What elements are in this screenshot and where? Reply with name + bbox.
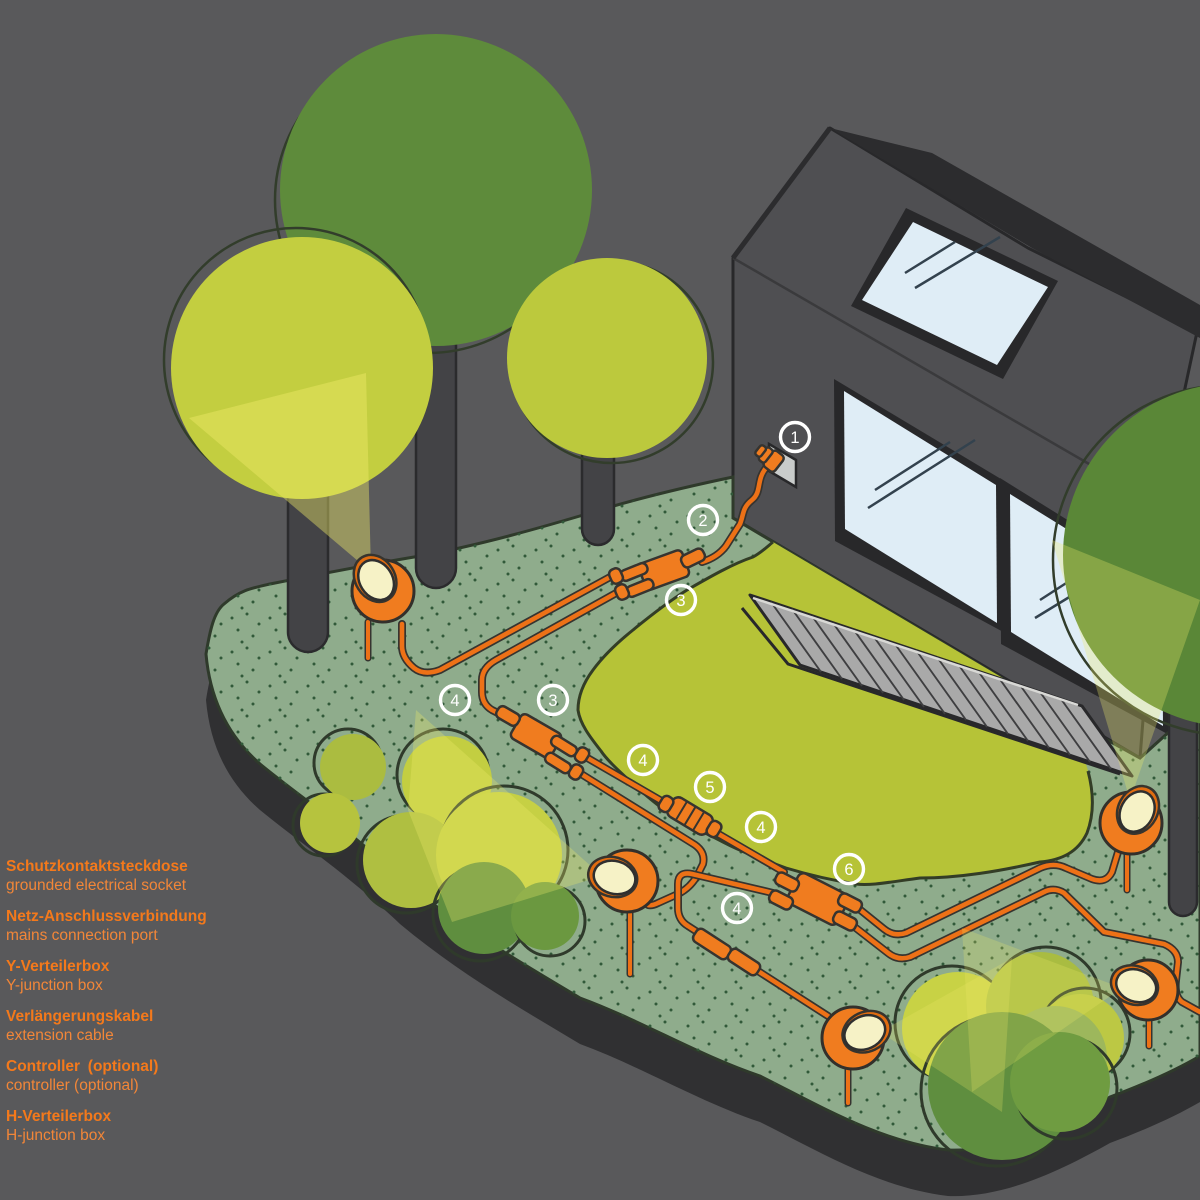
svg-text:2: 2 [698,512,707,530]
svg-text:controller (optional): controller (optional) [6,1077,139,1094]
svg-text:Controller (optional): Controller (optional) [6,1058,158,1075]
svg-text:4: 4 [732,900,741,918]
svg-text:3: 3 [548,692,557,710]
svg-text:Y-junction box: Y-junction box [6,977,103,994]
svg-text:6: 6 [844,861,853,879]
svg-text:H-junction box: H-junction box [6,1127,105,1144]
svg-text:3: 3 [676,592,685,610]
svg-text:4: 4 [638,752,647,770]
svg-text:1: 1 [790,429,799,447]
svg-text:4: 4 [756,819,765,837]
svg-text:4: 4 [450,692,459,710]
svg-text:Y-Verteilerbox: Y-Verteilerbox [6,958,110,975]
svg-text:5: 5 [705,779,714,797]
svg-text:H-Verteilerbox: H-Verteilerbox [6,1108,111,1125]
svg-text:mains connection port: mains connection port [6,927,158,944]
svg-text:Verlängerungskabel: Verlängerungskabel [6,1008,153,1025]
svg-text:grounded electrical socket: grounded electrical socket [6,877,187,894]
svg-text:extension cable: extension cable [6,1027,114,1044]
svg-text:Netz-Anschlussverbindung: Netz-Anschlussverbindung [6,908,207,925]
svg-text:Schutzkontaktsteckdose: Schutzkontaktsteckdose [6,858,188,875]
